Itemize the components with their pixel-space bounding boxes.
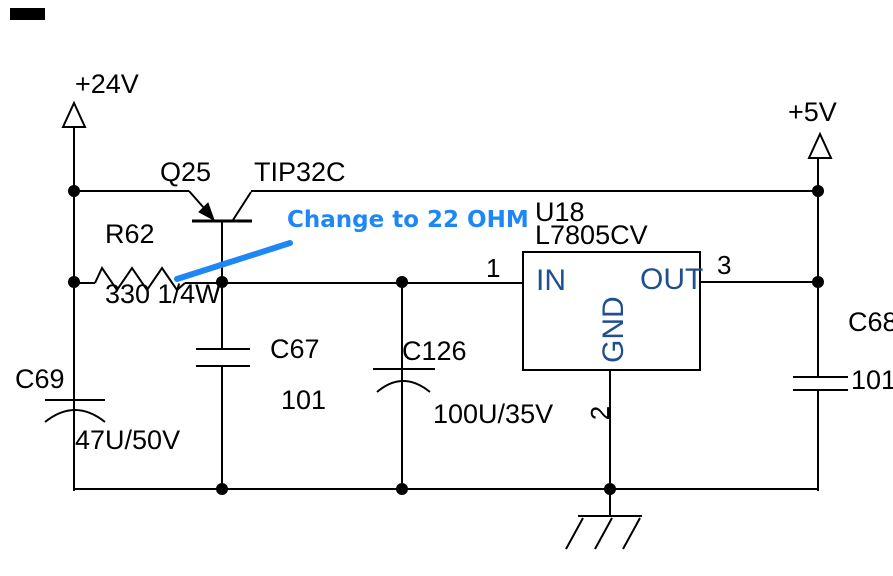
resistor-ref-label: R62 (105, 221, 155, 248)
power-label-24v: +24V (75, 71, 139, 98)
capacitor-c67-symbol (196, 349, 250, 366)
junction-dot (812, 276, 824, 288)
wire-emitter (189, 191, 204, 208)
regulator-pin-in-label: IN (536, 266, 566, 296)
capacitor-c67-value-label: 101 (281, 387, 326, 414)
regulator-pin-out-label: OUT (640, 265, 703, 295)
junction-dot (216, 483, 228, 495)
capacitor-c69-ref-label: C69 (15, 366, 65, 393)
junction-dot (396, 483, 408, 495)
c126-plate-curved (377, 381, 430, 392)
pin1-number-label: 1 (486, 255, 500, 281)
transistor-ref-label: Q25 (160, 159, 211, 186)
annotation-note-text: Change to 22 OHM (287, 209, 529, 232)
wire-collector (233, 192, 251, 220)
regulator-pin-gnd-label: GND (599, 297, 629, 363)
ground-symbol-icon (566, 489, 642, 549)
transistor-part-label: TIP32C (254, 159, 346, 186)
junction-dot (812, 185, 824, 197)
capacitor-c126-symbol (373, 369, 435, 392)
ground-hatches (566, 518, 640, 549)
resistor-value-label: 330 1/4W (105, 281, 221, 308)
annotation-pointer-line (177, 243, 290, 279)
power-arrow-5v-icon (809, 134, 831, 158)
capacitor-c68-ref-label: C68 (848, 309, 893, 336)
capacitor-c69-value-label: 47U/50V (75, 427, 180, 454)
power-label-5v: +5V (788, 99, 837, 126)
regulator-part-label: L7805CV (535, 222, 648, 249)
capacitor-c126-value-label: 100U/35V (433, 401, 553, 428)
capacitor-c68-value-label: 101 (851, 367, 893, 394)
junction-dot (396, 276, 408, 288)
capacitor-c126-ref-label: C126 (402, 338, 467, 365)
capacitor-c67-ref-label: C67 (270, 336, 320, 363)
capacitor-c68-symbol (793, 377, 848, 390)
pin2-number-label: 2 (587, 400, 613, 426)
schematic-canvas: +24V +5V Q25 TIP32C R62 330 1/4W C69 47U… (0, 0, 893, 576)
pin3-number-label: 3 (717, 252, 731, 278)
scan-artifact-mark (10, 8, 45, 20)
power-arrow-24v-icon (63, 103, 85, 127)
junction-dot (68, 185, 80, 197)
junction-dot (604, 483, 616, 495)
junction-dot (68, 276, 80, 288)
